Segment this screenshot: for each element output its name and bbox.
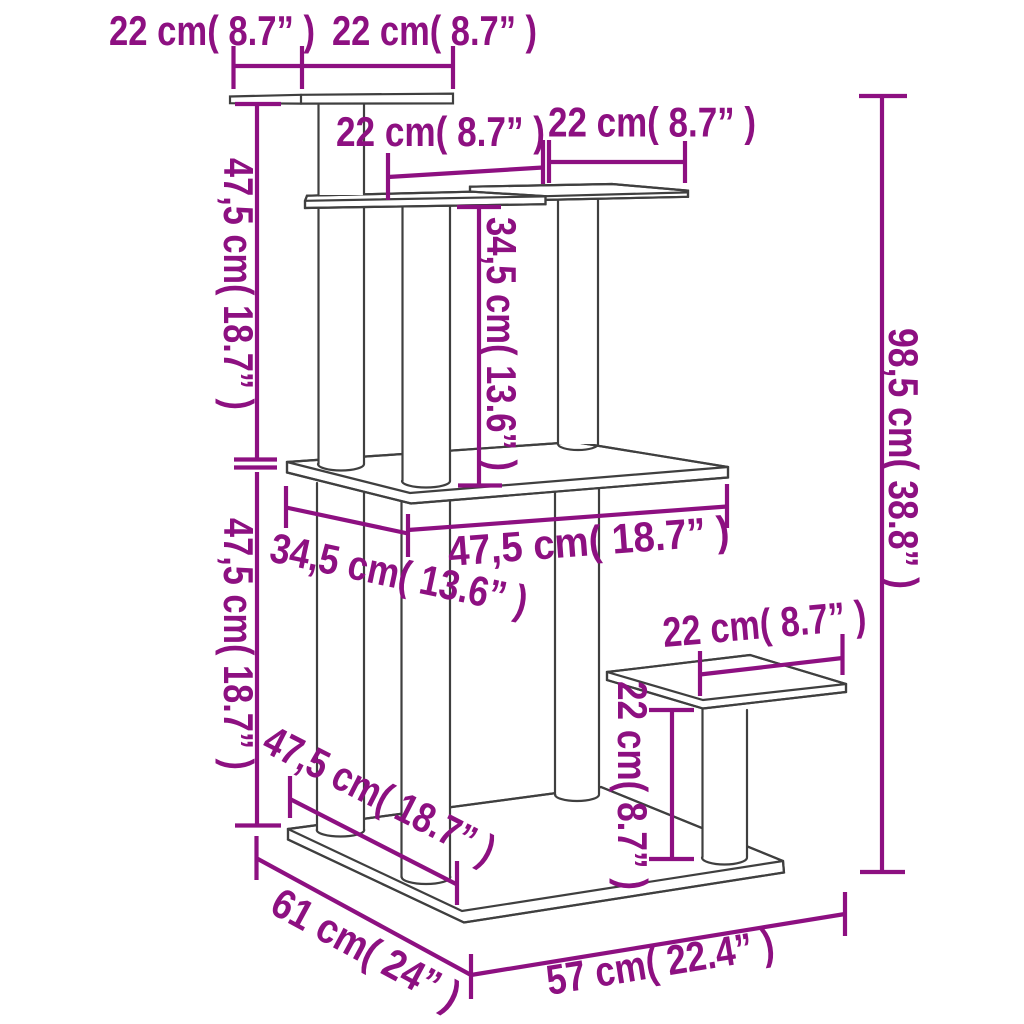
svg-text:22 cm( 8.7” ): 22 cm( 8.7” )	[609, 681, 656, 890]
svg-text:22 cm( 8.7” ): 22 cm( 8.7” )	[109, 7, 315, 54]
svg-text:22 cm( 8.7” ): 22 cm( 8.7” )	[548, 99, 756, 146]
svg-text:47,5 cm( 18.7” ): 47,5 cm( 18.7” )	[215, 518, 262, 770]
svg-text:98,5 cm( 38.8” ): 98,5 cm( 38.8” )	[880, 328, 927, 589]
svg-text:34,5 cm( 13.6” ): 34,5 cm( 13.6” )	[478, 217, 525, 471]
svg-text:22 cm( 8.7” ): 22 cm( 8.7” )	[332, 7, 537, 54]
svg-text:47,5 cm( 18.7” ): 47,5 cm( 18.7” )	[215, 158, 262, 410]
svg-text:22 cm( 8.7” ): 22 cm( 8.7” )	[336, 108, 545, 155]
